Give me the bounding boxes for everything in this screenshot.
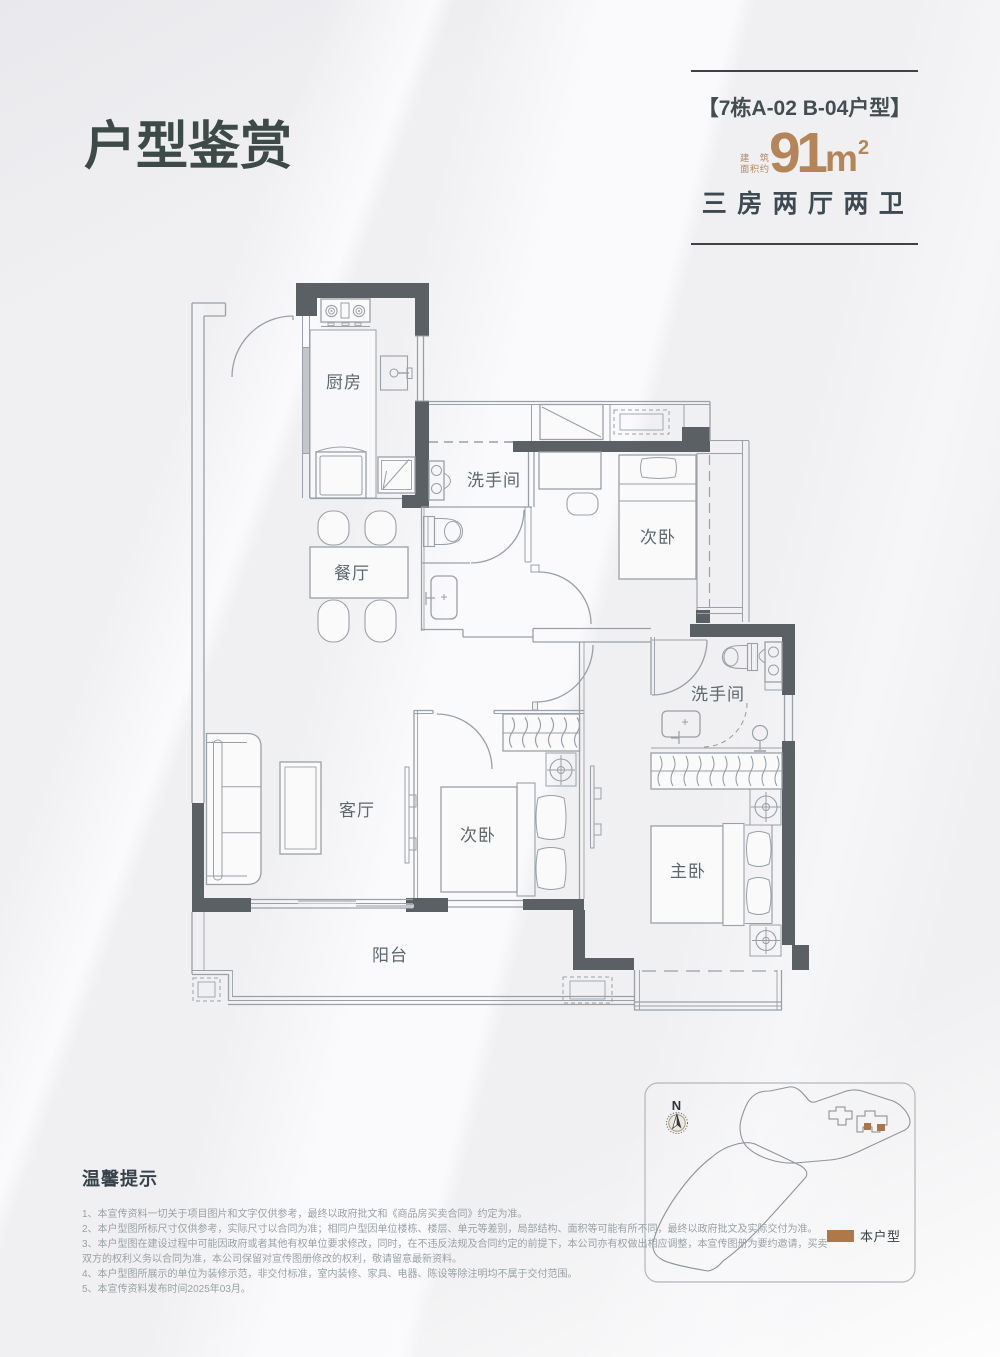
svg-text:客厅: 客厅 bbox=[339, 801, 375, 820]
svg-text:主卧: 主卧 bbox=[670, 862, 706, 881]
svg-text:阳台: 阳台 bbox=[372, 946, 408, 965]
svg-text:餐厅: 餐厅 bbox=[334, 564, 370, 583]
svg-text:洗手间: 洗手间 bbox=[467, 471, 521, 490]
svg-text:洗手间: 洗手间 bbox=[691, 685, 745, 704]
svg-text:本户型: 本户型 bbox=[860, 1229, 901, 1244]
svg-text:N: N bbox=[672, 1098, 682, 1113]
svg-text:次卧: 次卧 bbox=[640, 528, 676, 547]
svg-text:厨房: 厨房 bbox=[326, 373, 362, 392]
svg-text:次卧: 次卧 bbox=[460, 826, 496, 845]
